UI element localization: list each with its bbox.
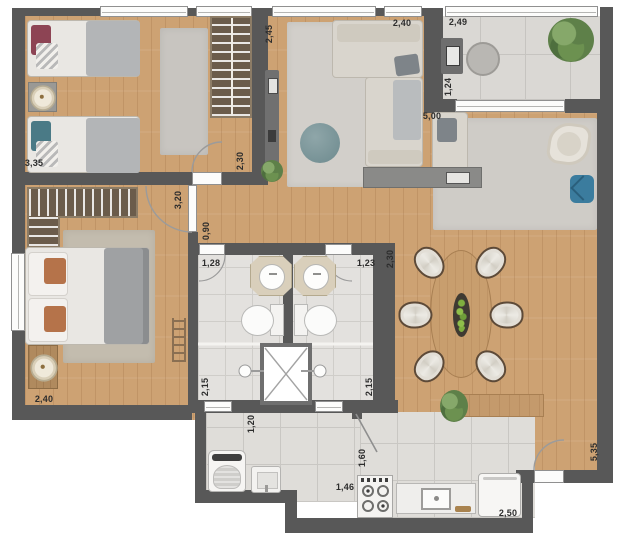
burner-2 [377,485,389,497]
wall-kitchen-bottom [285,518,533,533]
blanket [86,21,140,76]
dimension-label: 1,46 [336,482,354,492]
dimension-label: 5,00 [423,111,441,121]
plant-tv-panel [261,160,283,182]
dimension-label: 2,45 [264,25,274,43]
dimension-label: 3,35 [25,158,43,168]
sofa-facing-seat [432,112,468,174]
burner-3 [362,500,374,512]
dimension-label: 1,20 [246,415,256,433]
vent-bath-left [204,401,232,412]
tv-panel [265,70,279,172]
washer-door [213,465,241,489]
single-bed-2 [27,116,140,173]
stove-knobs [361,478,389,482]
vanity-right [294,256,336,296]
burner-1 [362,485,374,497]
closet-master-top [27,187,138,218]
faucet [269,273,277,275]
faucet [313,273,321,275]
window-living-a [272,6,376,17]
dining-chair-4 [490,302,524,329]
wall-kitchen-stub [352,412,362,419]
window-master [11,253,25,331]
cutting-board [455,506,471,512]
wall-left [12,8,25,420]
double-bed [25,247,150,345]
sofa-pillow [437,118,457,142]
centerpiece-plants [456,298,467,332]
window-bedroom1-a [100,6,188,17]
vent-bath-right [315,401,343,412]
dimension-label: 2,49 [449,17,467,27]
wall-dining-bottom [516,470,613,483]
nightstand-master [28,345,58,389]
utility-sink [251,466,281,493]
dimension-label: 2,15 [364,378,374,396]
media-console [363,167,482,188]
door-entrance [534,470,564,483]
dimension-label: 1,23 [357,258,375,268]
dimension-label: 0,90 [201,222,211,240]
duvet-gray [104,248,149,344]
sofa-right-section [365,77,423,167]
laptop-icon [446,46,460,66]
sofa-armrest [368,150,422,164]
wall-laundry-step [285,490,297,518]
door-master [188,185,197,232]
dimension-label: 1,24 [443,78,453,96]
single-bed-1 [27,20,140,77]
plant-bench [440,390,468,422]
wall-right [597,113,613,483]
pillow-rust-1 [44,258,66,284]
remote-device [446,172,470,184]
sofa-throw-pillows [394,53,421,76]
wardrobe-bedroom1 [210,16,252,118]
dining-chair-3 [399,302,433,329]
door-bath-right [325,244,352,255]
dimension-label: 2,40 [35,394,53,404]
counter-faucet [434,496,439,501]
door-bath-left [199,244,225,255]
dimension-label: 3,20 [173,191,183,209]
burner-4 [377,500,389,512]
ottoman-blue [570,175,594,203]
soundbar-icon [268,78,278,94]
toilet-left-bowl [241,305,274,336]
stove [357,475,393,518]
media-device-icon [268,130,276,142]
wall-master-bottom [12,405,192,420]
balcony-desk [441,38,463,74]
dimension-label: 2,30 [235,152,245,170]
dimension-label: 2,30 [385,250,395,268]
wall-bed1-bottom-a [12,172,192,185]
washing-machine [208,450,246,492]
dimension-label: 2,50 [499,508,517,518]
dimension-label: 1,60 [357,449,367,467]
floor-plan: 3,352,452,402,491,245,002,303,200,901,28… [0,0,634,543]
closet-master-left [27,216,60,248]
rug-bedroom1 [160,28,208,155]
blanket [86,118,140,173]
plant-balcony [548,18,594,62]
pillow-rust-2 [44,306,66,332]
ottoman-strap [570,175,595,200]
vanity-left [250,256,292,296]
window-balcony-door [455,100,565,112]
dimension-label: 1,28 [202,258,220,268]
sofa-chaise-top [332,20,423,78]
sink-drain [265,485,268,492]
wall-laundry-left [195,407,206,503]
door-bedroom1 [192,172,222,185]
dimension-label: 5,35 [589,443,599,461]
washer-panel [212,454,242,461]
nightstand-bedroom1 [28,82,57,112]
decor-ladder [172,318,186,362]
toilet-right-bowl [304,305,337,336]
wall-balcony-right [600,7,613,107]
wardrobe-divider [231,18,233,116]
wall-master-right [188,232,198,407]
sofa-blanket [393,80,421,140]
dimension-label: 2,40 [393,18,411,28]
centerpiece-tray [453,293,470,337]
office-chair [466,42,500,76]
pillow-chevron [36,43,58,69]
kitchen-counter [396,483,476,514]
window-balcony-top [445,6,598,17]
dimension-label: 2,15 [200,378,210,396]
armchair-cushion [555,130,582,157]
window-living-b [384,6,422,17]
fridge-handle [483,477,517,480]
pouf-teal [300,123,340,163]
wall-balcony-sill-r [565,99,613,113]
